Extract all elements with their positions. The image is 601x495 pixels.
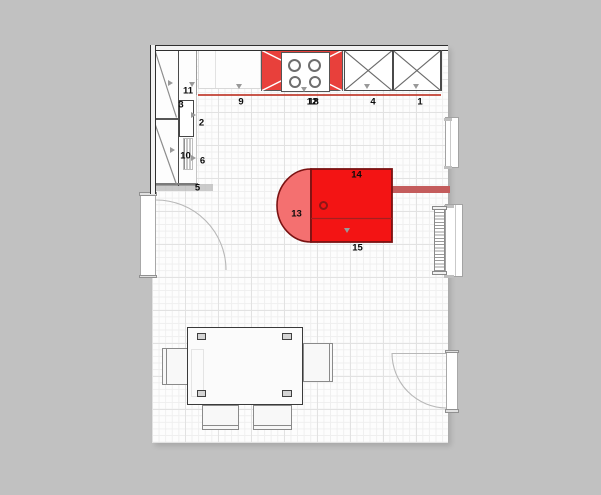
chair-bottom-2[interactable] — [253, 405, 292, 430]
table-leg — [197, 333, 207, 340]
item-label-13: 13 — [291, 209, 302, 219]
window-sill-tick — [444, 275, 454, 279]
selection-ring-handle[interactable] — [319, 201, 329, 211]
island-connector-bar[interactable] — [392, 186, 450, 193]
window-frame-line — [455, 205, 456, 277]
door-left-cap — [139, 275, 157, 279]
radiator-end-cap — [432, 206, 447, 210]
chair-backrest — [203, 425, 238, 426]
drag-handle-right-icon[interactable] — [168, 80, 173, 86]
chair-right[interactable] — [303, 343, 333, 382]
drag-handle-right-icon[interactable] — [170, 147, 175, 153]
drag-handle-down-icon[interactable] — [364, 84, 370, 89]
table-leg — [282, 390, 292, 397]
item-label-4: 4 — [370, 97, 375, 107]
door-right-leaf[interactable] — [446, 352, 458, 412]
plan-canvas: 11 3 9 12 18 4 1 2 10 6 5 13 14 15 — [0, 0, 601, 495]
item-label-1: 1 — [417, 97, 422, 107]
burner-icon — [289, 76, 301, 88]
item-label-15: 15 — [352, 243, 363, 253]
drag-handle-right-icon[interactable] — [191, 112, 196, 118]
item-label-5: 5 — [195, 183, 200, 193]
counter-divider-line — [215, 51, 216, 88]
door-right-open-line — [392, 353, 447, 354]
chair-left[interactable] — [162, 348, 188, 385]
item-label-3: 3 — [178, 100, 183, 110]
item-label-6: 6 — [200, 156, 205, 166]
drag-handle-down-icon[interactable] — [301, 87, 307, 92]
item-label-18: 18 — [308, 97, 319, 107]
item-label-10: 10 — [180, 151, 191, 161]
cabinet-block-bottom-edge — [154, 183, 198, 185]
cabinet-divider-line — [154, 118, 179, 120]
item-label-9: 9 — [238, 97, 243, 107]
worktop-accent-line — [198, 94, 442, 96]
window-frame-line — [450, 118, 451, 167]
item-label-2: 2 — [199, 118, 204, 128]
chair-backrest — [329, 344, 330, 381]
wall-top — [150, 45, 448, 51]
window-sill-tick — [444, 118, 452, 121]
chair-backrest — [166, 349, 167, 384]
drag-handle-down-icon[interactable] — [413, 84, 419, 89]
window-sill-tick — [444, 166, 452, 169]
drag-handle-down-icon[interactable] — [344, 228, 350, 233]
chair-backrest — [254, 425, 291, 426]
table-leg — [282, 333, 292, 340]
radiator-end-cap — [432, 271, 447, 275]
drag-handle-down-icon[interactable] — [236, 84, 242, 89]
chair-bottom-1[interactable] — [202, 405, 239, 430]
radiator[interactable] — [434, 208, 445, 274]
burner-icon — [308, 59, 321, 72]
door-left-leaf[interactable] — [140, 194, 156, 277]
counter-zone-9[interactable] — [198, 50, 262, 89]
wall-left — [150, 45, 156, 194]
window-bottom-right[interactable] — [445, 204, 463, 278]
item-label-11: 11 — [183, 86, 193, 96]
drag-handle-right-icon[interactable] — [191, 155, 196, 161]
cooktop-18[interactable] — [281, 52, 330, 92]
item-label-14: 14 — [351, 170, 362, 180]
door-right-cap — [445, 409, 459, 413]
table-leg — [197, 390, 207, 397]
door-right-cap — [445, 350, 459, 354]
worktop-edge-line — [196, 95, 197, 184]
window-top-right[interactable] — [445, 117, 459, 168]
burner-icon — [288, 59, 301, 72]
cabinet-run-end-wall — [441, 50, 442, 91]
burner-icon — [309, 76, 321, 88]
